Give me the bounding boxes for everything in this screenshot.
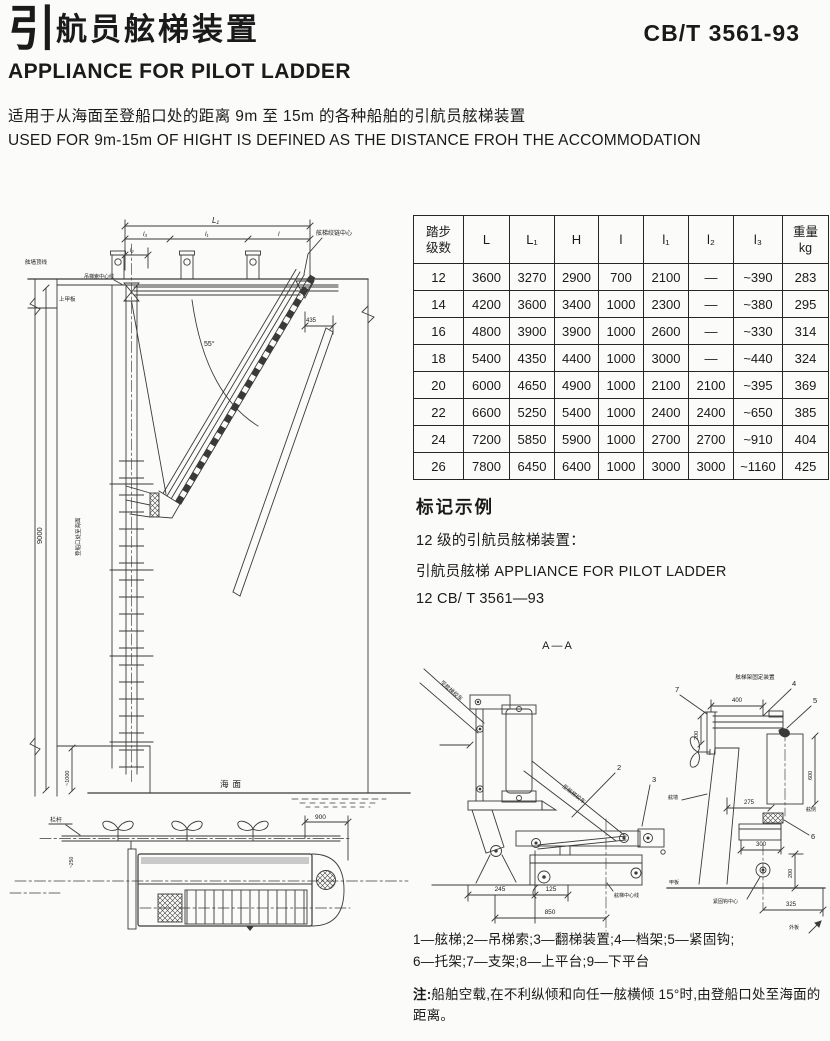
dim-275-label: 275 bbox=[744, 800, 755, 806]
table-cell: 1000 bbox=[599, 318, 644, 345]
page-title: 引航员舷梯装置 bbox=[8, 4, 260, 52]
table-cell: ~440 bbox=[734, 345, 783, 372]
table-cell: 2400 bbox=[689, 399, 734, 426]
marking-example-line2: 引航员舷梯 APPLIANCE FOR PILOT LADDER bbox=[416, 560, 727, 581]
table-cell: 3000 bbox=[689, 453, 734, 480]
table-cell: 3400 bbox=[555, 291, 599, 318]
dim-l2-label: l₂ bbox=[130, 248, 134, 254]
callout-4-group: 4 bbox=[763, 679, 796, 716]
ladder-head-assembly bbox=[516, 829, 665, 898]
table-cell: ~1160 bbox=[734, 453, 783, 480]
col-header-weight: 重量 kg bbox=[783, 216, 829, 264]
dim-l3-label: l₃ bbox=[143, 231, 147, 238]
table-cell: 3900 bbox=[555, 318, 599, 345]
table-row: 20600046504900100021002100~395369 bbox=[414, 372, 829, 399]
table-cell: 283 bbox=[783, 264, 829, 291]
sea-surface: 海面 bbox=[88, 779, 410, 807]
page-title-english: APPLIANCE FOR PILOT LADDER bbox=[8, 60, 351, 84]
table-cell: 22 bbox=[414, 399, 464, 426]
frame-plate bbox=[767, 730, 803, 816]
bracket-assembly bbox=[739, 813, 783, 840]
section-aa-title: A—A bbox=[542, 640, 574, 652]
winch-cable-upper: 至舷梯绞车 bbox=[420, 669, 484, 733]
callout-7-group: 7 bbox=[675, 685, 707, 714]
document-page: 引航员舷梯装置 CB/T 3561-93 APPLIANCE FOR PILOT… bbox=[0, 0, 830, 1041]
table-cell: — bbox=[689, 264, 734, 291]
table-header-row: 踏步 级数 L L₁ H l l₁ l₂ l₃ 重量 kg bbox=[414, 216, 829, 264]
col-header-l3: l₃ bbox=[734, 216, 783, 264]
table-cell: 7800 bbox=[464, 453, 510, 480]
col-header-H: H bbox=[555, 216, 599, 264]
table-cell: 1000 bbox=[599, 453, 644, 480]
callout-2-group: 2 bbox=[572, 763, 621, 817]
table-cell: 5400 bbox=[464, 345, 510, 372]
table-cell: 1000 bbox=[599, 372, 644, 399]
side-label: 舷侧 bbox=[806, 806, 816, 813]
dim-850-label: 850 bbox=[545, 909, 556, 916]
callout-4: 4 bbox=[792, 679, 796, 688]
spec-table: 踏步 级数 L L₁ H l l₁ l₂ l₃ 重量 kg 1236003270… bbox=[413, 215, 829, 480]
table-cell: 1000 bbox=[599, 399, 644, 426]
legend-line2: 6—托架;7—支架;8—上平台;9—下平台 bbox=[413, 951, 735, 973]
table-cell: 369 bbox=[783, 372, 829, 399]
table-row: 123600327029007002100—~390283 bbox=[414, 264, 829, 291]
table-cell: 2100 bbox=[644, 372, 689, 399]
angle-55-group: 55° bbox=[192, 300, 258, 426]
dim-l-label: l bbox=[278, 231, 280, 238]
table-cell: 3600 bbox=[510, 291, 555, 318]
table-cell: 6600 bbox=[464, 399, 510, 426]
stowed-ladder bbox=[126, 270, 314, 519]
table-row: 1648003900390010002600—~330314 bbox=[414, 318, 829, 345]
dimension-900: 900 bbox=[302, 814, 351, 860]
col-header-L1: L₁ bbox=[510, 216, 555, 264]
table-cell: 314 bbox=[783, 318, 829, 345]
table-cell: 2300 bbox=[644, 291, 689, 318]
dim-435-label: 435 bbox=[306, 318, 317, 324]
table-cell: 4900 bbox=[555, 372, 599, 399]
standard-code: CB/T 3561-93 bbox=[644, 20, 800, 47]
table-cell: 3270 bbox=[510, 264, 555, 291]
table-cell: 2700 bbox=[689, 426, 734, 453]
table-cell: 295 bbox=[783, 291, 829, 318]
table-cell: 700 bbox=[599, 264, 644, 291]
marking-example: 标记示例 12 级的引航员舷梯装置： 引航员舷梯 APPLIANCE FOR P… bbox=[416, 494, 727, 607]
callout-2: 2 bbox=[617, 763, 621, 772]
table-cell: ~395 bbox=[734, 372, 783, 399]
shell-label: 外板 bbox=[789, 924, 799, 931]
dim-900-label: 900 bbox=[315, 814, 326, 821]
dim-400-label: 400 bbox=[732, 698, 743, 704]
table-cell: ~650 bbox=[734, 399, 783, 426]
legend: 1—舷梯;2—吊梯索;3—翻梯装置;4—档架;5—紧固钩; 6—托架;7—支架;… bbox=[413, 929, 735, 973]
table-cell: ~380 bbox=[734, 291, 783, 318]
table-cell: ~330 bbox=[734, 318, 783, 345]
sea-label: 海面 bbox=[220, 779, 245, 789]
table-cell: 1000 bbox=[599, 345, 644, 372]
dimension-275: 275 bbox=[724, 798, 774, 814]
col-header-L: L bbox=[464, 216, 510, 264]
table-cell: 4200 bbox=[464, 291, 510, 318]
plan-view: 栏杆 900 ~250 bbox=[10, 814, 408, 931]
table-cell: 6400 bbox=[555, 453, 599, 480]
table-cell: 2400 bbox=[644, 399, 689, 426]
hook-center-label: 紧固钩中心 bbox=[713, 898, 738, 905]
table-cell: 5900 bbox=[555, 426, 599, 453]
spec-table-rows: 123600327029007002100—~39028314420036003… bbox=[414, 264, 829, 480]
upper-deck-label: 上甲板 bbox=[59, 295, 76, 303]
height-note-label: 登船口处至海面 bbox=[74, 517, 82, 556]
table-cell: 385 bbox=[783, 399, 829, 426]
table-cell: 6450 bbox=[510, 453, 555, 480]
marking-example-heading: 标记示例 bbox=[416, 494, 727, 519]
shell-label-group: 外板 bbox=[789, 921, 821, 933]
marking-example-line3: 12 CB/ T 3561—93 bbox=[416, 591, 727, 607]
hook-center-label-group: 紧固钩中心 bbox=[713, 877, 760, 905]
dim-125-label: 125 bbox=[546, 886, 557, 893]
dim-L1-label: L₁ bbox=[212, 216, 219, 225]
table-row: 26780064506400100030003000~1160425 bbox=[414, 453, 829, 480]
table-cell: 1000 bbox=[599, 426, 644, 453]
callout-7: 7 bbox=[675, 685, 679, 694]
callout-6-group: 6 bbox=[784, 820, 815, 841]
dim-245-label: 245 bbox=[495, 886, 506, 893]
dimension-1000: ~1000 bbox=[65, 745, 75, 794]
callout-5: 5 bbox=[813, 696, 817, 705]
rail-label-group: 栏杆 bbox=[49, 816, 80, 835]
footnote: 注:船舶空载,在不利纵倾和向任一舷横倾 15°时,由登船口处至海面的距离。 bbox=[413, 984, 827, 1026]
bulwark-top-line-label: 舷墙顶线 bbox=[25, 258, 48, 266]
table-cell: 1000 bbox=[599, 291, 644, 318]
dimension-L1: L₁ l₃ l₁ l l₂ bbox=[122, 216, 313, 278]
table-cell: ~910 bbox=[734, 426, 783, 453]
table-cell: 6000 bbox=[464, 372, 510, 399]
fixing-detail-drawing: 舷梯架固定装置 7 4 5 400 bbox=[663, 648, 830, 941]
scope-text-zh: 适用于从海面至登船口处的距离 9m 至 15m 的各种船舶的引航员舷梯装置 bbox=[8, 104, 526, 126]
dim-300-label: 300 bbox=[756, 842, 767, 848]
callout-3-group: 3 bbox=[642, 775, 656, 826]
dimension-325: 325 bbox=[760, 888, 826, 916]
dim-9000-label: 9000 bbox=[35, 527, 44, 544]
callout-5-group: 5 bbox=[787, 696, 817, 728]
page-title-rest: 航员舷梯装置 bbox=[56, 4, 260, 52]
dim-600-label: 600 bbox=[808, 771, 814, 780]
table-cell: 3900 bbox=[510, 318, 555, 345]
marking-example-line1: 12 级的引航员舷梯装置： bbox=[416, 529, 727, 550]
dimension-9000: 9000 bbox=[35, 285, 49, 793]
table-cell: 16 bbox=[414, 318, 464, 345]
table-cell: 4800 bbox=[464, 318, 510, 345]
dimension-200-right: 200 bbox=[788, 851, 803, 891]
col-header-l2: l₂ bbox=[689, 216, 734, 264]
col-header-l1: l₁ bbox=[644, 216, 689, 264]
davit-center-label: 吊梯索中心线 bbox=[84, 273, 114, 280]
col-header-steps: 踏步 级数 bbox=[414, 216, 464, 264]
deck-label: 甲板 bbox=[669, 879, 679, 886]
table-cell: 3600 bbox=[464, 264, 510, 291]
table-cell: 20 bbox=[414, 372, 464, 399]
table-row: 1854004350440010003000—~440324 bbox=[414, 345, 829, 372]
dimension-300: 300 bbox=[738, 824, 784, 854]
table-cell: 14 bbox=[414, 291, 464, 318]
table-cell: 3000 bbox=[644, 345, 689, 372]
table-cell: 7200 bbox=[464, 426, 510, 453]
hinge-center-label-group: 舷梯绞链中心 bbox=[304, 229, 352, 274]
dim-325-label: 325 bbox=[786, 902, 797, 908]
table-cell: 5400 bbox=[555, 399, 599, 426]
table-cell: 2900 bbox=[555, 264, 599, 291]
scope-text-en: USED FOR 9m-15m OF HIGHT IS DEFINED AS T… bbox=[8, 132, 701, 150]
bulwark-column bbox=[699, 748, 739, 884]
table-cell: 404 bbox=[783, 426, 829, 453]
hinge-center-label: 舷梯绞链中心 bbox=[316, 229, 352, 237]
table-cell: 2600 bbox=[644, 318, 689, 345]
elevation-view: L₁ l₃ l₁ l l₂ 舷墙顶线 上甲板 bbox=[25, 216, 410, 807]
footnote-label: 注: bbox=[413, 987, 431, 1002]
bulwark-label: 舷墙 bbox=[668, 794, 678, 801]
table-cell: 12 bbox=[414, 264, 464, 291]
table-cell: 425 bbox=[783, 453, 829, 480]
table-cell: 2100 bbox=[689, 372, 734, 399]
dimension-600: 600 bbox=[808, 733, 818, 807]
legend-line1: 1—舷梯;2—吊梯索;3—翻梯装置;4—档架;5—紧固钩; bbox=[413, 929, 735, 951]
table-cell: 5850 bbox=[510, 426, 555, 453]
dim-250-label: ~250 bbox=[69, 857, 75, 868]
dimension-850: 850 bbox=[492, 895, 609, 923]
table-cell: 324 bbox=[783, 345, 829, 372]
rail-label: 栏杆 bbox=[50, 816, 62, 824]
angle-55-label: 55° bbox=[204, 340, 215, 348]
table-cell: — bbox=[689, 291, 734, 318]
table-row: 22660052505400100024002400~650385 bbox=[414, 399, 829, 426]
lashing-eye bbox=[756, 844, 770, 910]
section-aa-drawing: A—A 至舷梯绞车 bbox=[420, 633, 670, 935]
table-cell: 5250 bbox=[510, 399, 555, 426]
table-cell: 4400 bbox=[555, 345, 599, 372]
dim-l1-label: l₁ bbox=[205, 231, 209, 238]
table-row: 1442003600340010002300—~380295 bbox=[414, 291, 829, 318]
footnote-text: 船舶空载,在不利纵倾和向任一舷横倾 15°时,由登船口处至海面的距离。 bbox=[413, 987, 820, 1023]
plan-cleats bbox=[103, 821, 268, 841]
table-cell: — bbox=[689, 345, 734, 372]
ladder-centerline-label: 舷梯中心线 bbox=[614, 892, 639, 899]
swing-boom-outline bbox=[233, 328, 333, 596]
table-cell: 24 bbox=[414, 426, 464, 453]
table-cell: 26 bbox=[414, 453, 464, 480]
detail-title: 舷梯架固定装置 bbox=[735, 673, 775, 681]
dim-1000-label: ~1000 bbox=[65, 771, 71, 786]
winch-upper-label: 至舷梯绞车 bbox=[439, 678, 465, 702]
callout-3: 3 bbox=[652, 775, 656, 784]
table-cell: 18 bbox=[414, 345, 464, 372]
table-cell: — bbox=[689, 318, 734, 345]
page-title-lead-char: 引 bbox=[8, 8, 56, 52]
pilot-rope-ladder bbox=[110, 244, 153, 782]
dim-200-right-label: 200 bbox=[788, 869, 794, 878]
table-cell: 4650 bbox=[510, 372, 555, 399]
table-cell: 2100 bbox=[644, 264, 689, 291]
table-cell: 3000 bbox=[644, 453, 689, 480]
table-row: 24720058505900100027002700~910404 bbox=[414, 426, 829, 453]
bulwark-label-group: 舷墙 bbox=[668, 794, 707, 801]
table-cell: 2700 bbox=[644, 426, 689, 453]
top-arm bbox=[705, 711, 789, 754]
dimension-400: 400 bbox=[708, 698, 766, 716]
table-cell: ~390 bbox=[734, 264, 783, 291]
table-cell: 4350 bbox=[510, 345, 555, 372]
elevation-and-plan-drawing: L₁ l₃ l₁ l l₂ 舷墙顶线 上甲板 bbox=[0, 208, 412, 941]
callout-6: 6 bbox=[811, 832, 815, 841]
col-header-l: l bbox=[599, 216, 644, 264]
